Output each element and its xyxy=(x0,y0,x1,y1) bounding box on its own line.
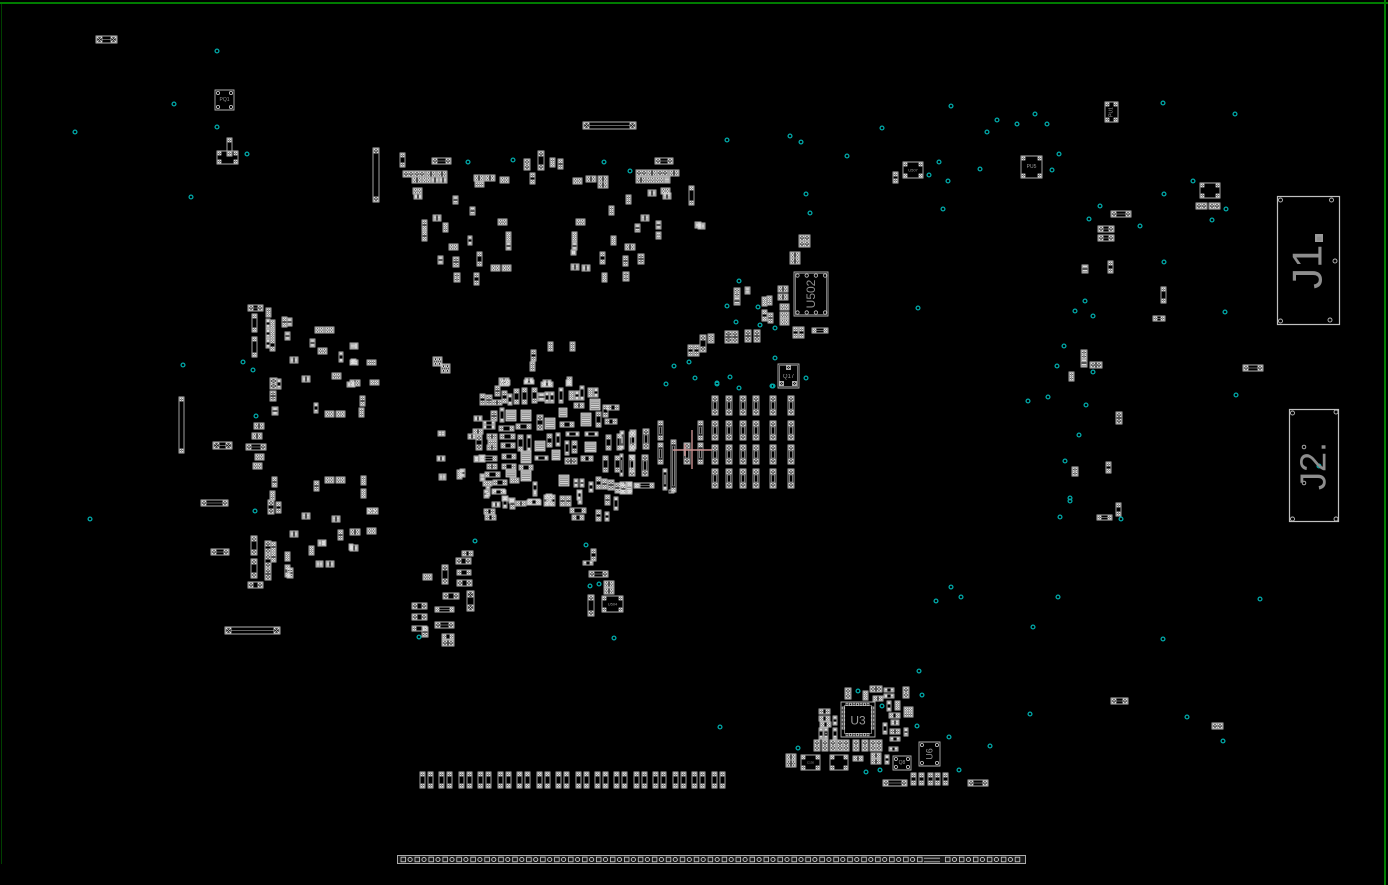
svg-text:J1.: J1. xyxy=(1284,233,1331,289)
svg-text:U502: U502 xyxy=(804,279,818,308)
svg-text:Q17: Q17 xyxy=(783,374,795,380)
svg-text:U3: U3 xyxy=(850,714,866,728)
svg-text:U6: U6 xyxy=(925,748,935,760)
svg-text:C130: C130 xyxy=(807,761,815,765)
svg-text:PU5: PU5 xyxy=(1027,164,1037,170)
svg-text:J2.: J2. xyxy=(1293,442,1334,490)
svg-text:PU1: PU1 xyxy=(1109,107,1115,117)
svg-text:PQ1: PQ1 xyxy=(219,97,229,103)
svg-text:U504: U504 xyxy=(608,602,618,607)
svg-text:Q8: Q8 xyxy=(899,760,906,766)
svg-text:U507: U507 xyxy=(908,168,918,173)
